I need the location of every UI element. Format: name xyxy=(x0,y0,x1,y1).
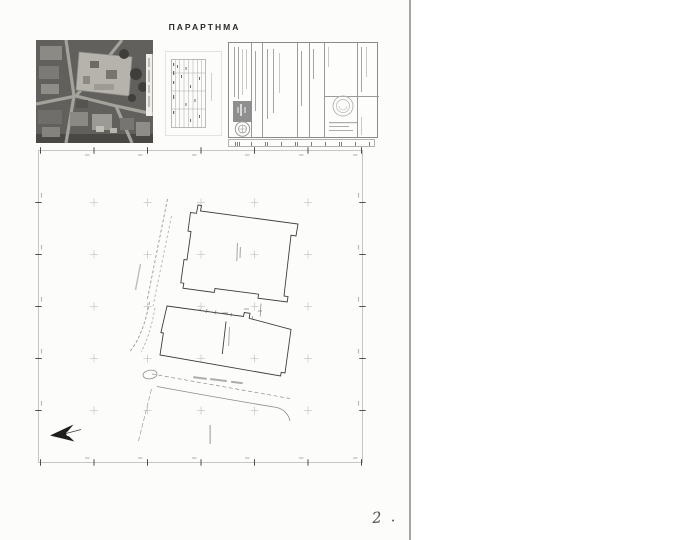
upper-building-outline xyxy=(181,205,298,302)
bottom-center-label-mark xyxy=(210,425,211,444)
lower-building-divider xyxy=(222,322,226,355)
north-arrow-icon xyxy=(50,425,81,442)
lower-building-outline xyxy=(160,304,291,377)
page-edge-line xyxy=(409,0,411,540)
street-bottom-name-marks xyxy=(193,376,243,384)
street-left xyxy=(130,199,172,380)
handwritten-page-number: 2 . xyxy=(371,507,398,527)
street-left-label-mark xyxy=(136,264,141,290)
upper-building-label-marks xyxy=(237,243,241,261)
grid-crosses xyxy=(90,199,312,415)
street-bottom xyxy=(139,374,291,441)
scanned-sheet: ΠΑΡΑΡΤΗΜΑ xyxy=(0,0,409,540)
site-plan-drawing xyxy=(0,0,409,540)
